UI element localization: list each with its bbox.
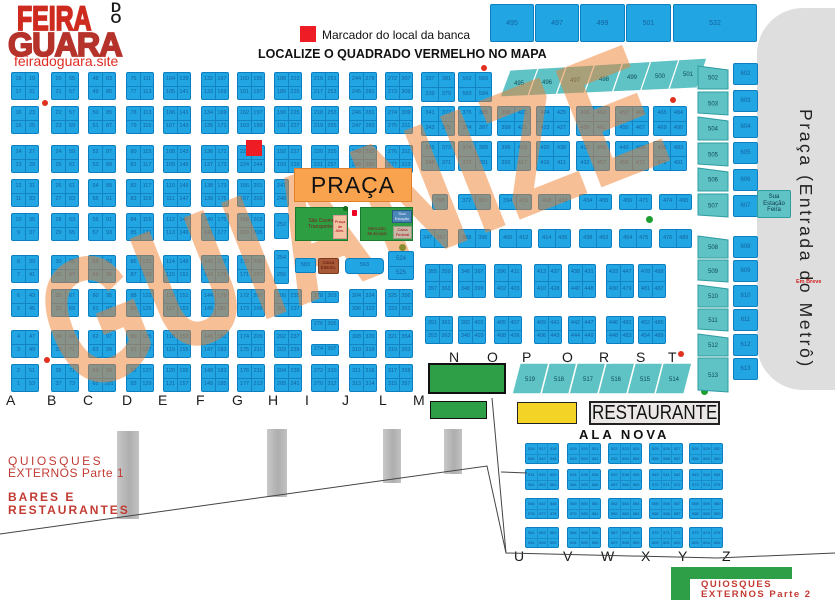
svg-text:518: 518: [554, 377, 565, 383]
svg-text:513: 513: [708, 373, 719, 379]
svg-text:500: 500: [655, 74, 666, 80]
svg-text:508: 508: [708, 245, 719, 251]
svg-text:504: 504: [708, 127, 719, 133]
svg-text:502: 502: [708, 76, 719, 82]
svg-text:506: 506: [708, 178, 719, 184]
svg-text:512: 512: [708, 343, 719, 349]
svg-text:507: 507: [708, 204, 719, 210]
svg-text:505: 505: [708, 153, 719, 159]
svg-text:503: 503: [708, 102, 719, 108]
svg-text:514: 514: [669, 377, 680, 383]
svg-text:501: 501: [683, 72, 694, 78]
svg-text:509: 509: [708, 269, 719, 275]
svg-text:515: 515: [640, 377, 651, 383]
svg-text:519: 519: [525, 377, 536, 383]
svg-text:516: 516: [611, 377, 622, 383]
svg-text:511: 511: [708, 318, 718, 324]
svg-text:510: 510: [708, 294, 719, 300]
svg-text:517: 517: [583, 377, 594, 383]
